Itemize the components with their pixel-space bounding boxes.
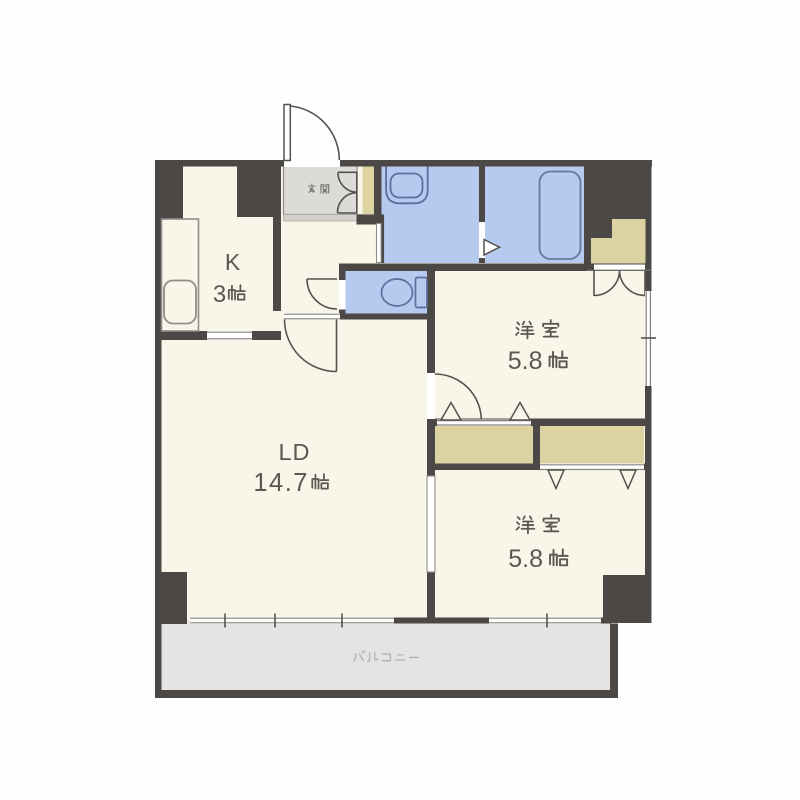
- svg-text:K: K: [225, 249, 241, 275]
- svg-text:5.8: 5.8: [508, 545, 543, 573]
- svg-text:3: 3: [213, 281, 226, 308]
- svg-text:LD: LD: [278, 439, 310, 465]
- svg-text:14.7: 14.7: [253, 469, 309, 497]
- svg-text:5.8: 5.8: [508, 347, 543, 375]
